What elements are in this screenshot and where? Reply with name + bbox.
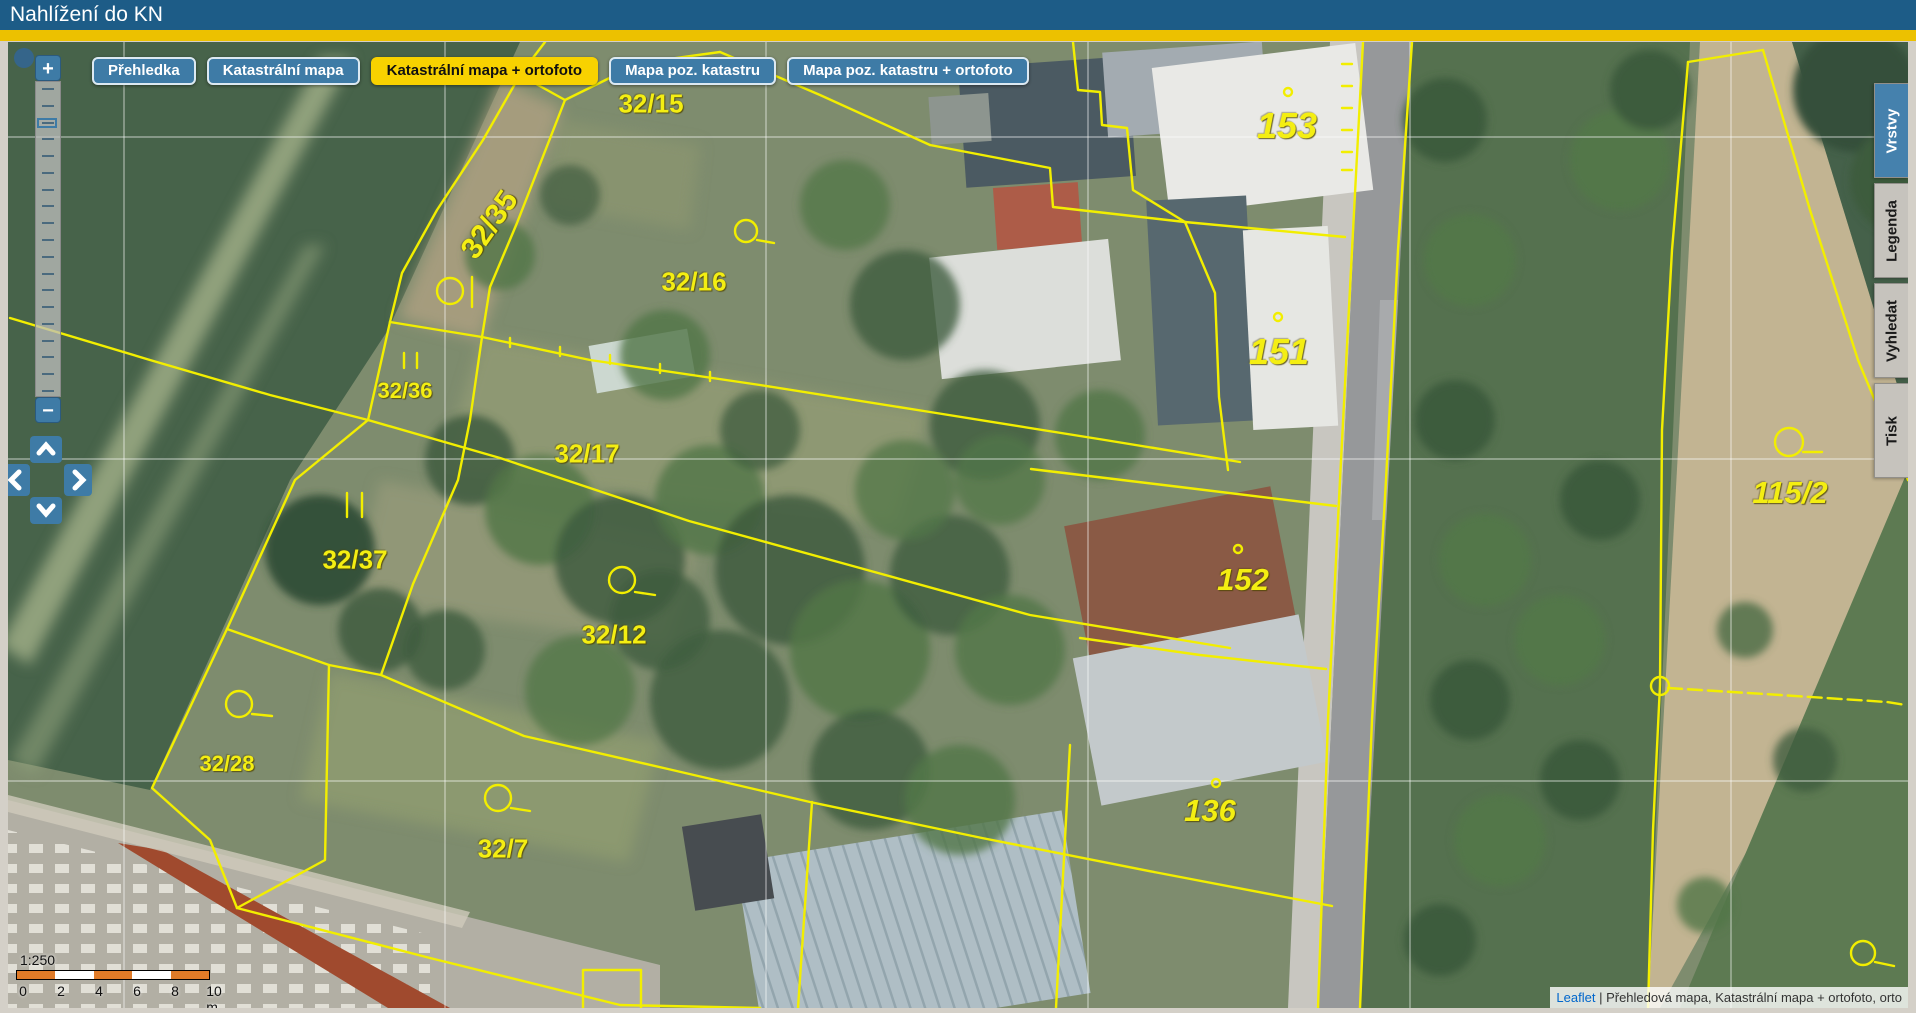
zoom-level-current[interactable] (37, 118, 57, 128)
zoom-level-tick[interactable] (42, 356, 54, 358)
tab-legenda[interactable]: Legenda (1874, 183, 1908, 278)
scale-segments (16, 970, 210, 980)
leaflet-link[interactable]: Leaflet (1556, 990, 1595, 1005)
scale-tick-labels: 0 2 4 6 8 10 m (16, 983, 226, 999)
zoom-level-tick[interactable] (42, 155, 54, 157)
tab-vyhledat-label: Vyhledat (1883, 300, 1900, 362)
zoom-level-tick[interactable] (42, 205, 54, 207)
app-window: Nahlížení do KN (0, 0, 1916, 1013)
zoom-level-tick[interactable] (42, 273, 54, 275)
basemap-button-katastralni-mapa[interactable]: Katastrální mapa (207, 57, 360, 85)
zoom-level-tick[interactable] (42, 340, 54, 342)
zoom-level-tick[interactable] (42, 172, 54, 174)
zoom-level-tick[interactable] (42, 88, 54, 90)
attribution: Leaflet | Přehledová mapa, Katastrální m… (1550, 987, 1908, 1008)
pan-right-button[interactable] (64, 464, 92, 496)
parcel-label: 115/2 (1752, 475, 1827, 511)
parcel-label: 32/7 (478, 834, 529, 865)
basemap-toolbar: Přehledka Katastrální mapa Katastrální m… (92, 57, 1029, 85)
zoom-level-tick[interactable] (42, 222, 54, 224)
parcel-label: 32/12 (581, 620, 646, 651)
zoom-level-tick[interactable] (42, 306, 54, 308)
building-label: 136 (1184, 793, 1236, 829)
zoom-level-tick[interactable] (42, 390, 54, 392)
scale-tick: 6 (133, 983, 141, 999)
basemap-button-mapa-poz-katastru-ortofoto[interactable]: Mapa poz. katastru + ortofoto (787, 57, 1029, 85)
zoom-slider[interactable] (35, 81, 61, 397)
orthophoto-layer (8, 42, 1908, 1008)
map-viewport[interactable]: 32/15 32/35 32/16 153 151 32/36 32/17 32… (8, 42, 1908, 1008)
basemap-button-prehledka[interactable]: Přehledka (92, 57, 196, 85)
tab-tisk[interactable]: Tisk (1874, 383, 1908, 478)
attribution-layers: Přehledová mapa, Katastrální mapa + orto… (1606, 990, 1902, 1005)
zoom-level-tick[interactable] (42, 138, 54, 140)
pan-left-button[interactable] (8, 464, 30, 496)
basemap-button-katastralni-mapa-ortofoto[interactable]: Katastrální mapa + ortofoto (371, 57, 598, 85)
tab-vrstvy[interactable]: Vrstvy (1874, 83, 1908, 178)
page-title: Nahlížení do KN (0, 0, 1916, 30)
scale-tick: 2 (57, 983, 65, 999)
chevron-right-icon (64, 464, 92, 496)
building-label: 153 (1257, 105, 1317, 147)
parcel-label: 32/36 (377, 378, 432, 404)
attribution-separator: | (1595, 990, 1606, 1005)
parcel-label: 32/17 (554, 439, 619, 470)
zoom-level-tick[interactable] (42, 256, 54, 258)
parcel-label: 32/37 (322, 545, 387, 576)
scale-ratio: 1:250 (20, 952, 236, 968)
tab-legenda-label: Legenda (1883, 200, 1900, 262)
scale-tick: 0 (19, 983, 27, 999)
zoom-level-tick[interactable] (42, 239, 54, 241)
chevron-left-icon (8, 464, 30, 496)
scale-tick: 8 (171, 983, 179, 999)
tab-vyhledat[interactable]: Vyhledat (1874, 283, 1908, 378)
parcel-label: 32/28 (199, 751, 254, 777)
zoom-level-tick[interactable] (42, 189, 54, 191)
zoom-level-tick[interactable] (42, 323, 54, 325)
tab-vrstvy-label: Vrstvy (1883, 108, 1900, 153)
chevron-up-icon (30, 436, 62, 463)
zoom-level-tick[interactable] (42, 105, 54, 107)
scale-tick: 10 m (206, 983, 222, 1008)
scale-bar: 1:250 0 2 4 6 8 10 m (16, 952, 236, 999)
chevron-down-icon (30, 497, 62, 524)
pan-up-button[interactable] (30, 436, 62, 463)
gold-stripe (0, 30, 1916, 41)
pan-down-button[interactable] (30, 497, 62, 524)
building-label: 151 (1249, 331, 1309, 373)
scale-tick: 4 (95, 983, 103, 999)
basemap-button-mapa-poz-katastru[interactable]: Mapa poz. katastru (609, 57, 776, 85)
parcel-label: 32/16 (661, 267, 726, 298)
parcel-label: 32/15 (618, 89, 683, 120)
building-label: 152 (1217, 562, 1269, 598)
zoom-level-tick[interactable] (42, 289, 54, 291)
zoom-in-button[interactable]: + (35, 55, 61, 81)
zoom-level-tick[interactable] (42, 373, 54, 375)
zoom-out-button[interactable]: − (35, 397, 61, 423)
tab-tisk-label: Tisk (1883, 416, 1900, 446)
